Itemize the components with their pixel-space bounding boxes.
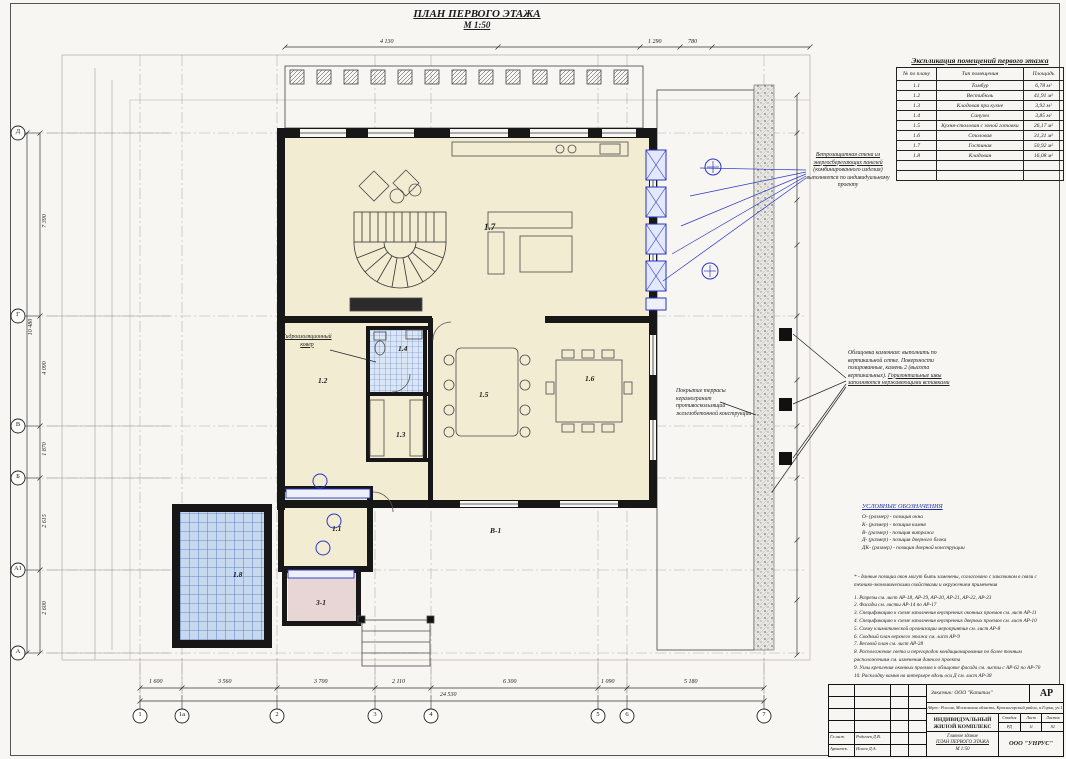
room-schedule: Экспликация помещений первого этажа № по… xyxy=(896,56,1064,181)
drawing-title-small: ПЛАН ПЕРВОГО ЭТАЖА xyxy=(927,740,998,746)
schedule-col-name: Тип помещения xyxy=(937,68,1024,81)
project-name: ИНДИВИДУАЛЬНЫЙ ЖИЛОЙ КОМПЛЕКС xyxy=(927,714,998,732)
dim-top-2: 780 xyxy=(688,39,697,45)
stage-value: РД xyxy=(999,723,1021,731)
cell-name xyxy=(937,161,1024,171)
vent-wall-note-2: (комбинированного изделия) выполняется п… xyxy=(806,167,889,188)
axis-left-b: Б xyxy=(11,473,25,480)
dim-left-3: 2 615 xyxy=(42,504,48,538)
cell-name: Вестибюль xyxy=(937,91,1024,101)
cell-area xyxy=(1023,171,1063,181)
project-address: Адрес: Россия, Московская область, Красн… xyxy=(927,703,1063,714)
cladding-note: Облицовка каменная: выполнить по вертика… xyxy=(848,350,962,388)
dim-left-2: 1 870 xyxy=(42,432,48,466)
vent-wall-note-1: Ветрозащитная стена из энергосберегающих… xyxy=(813,152,882,166)
room-label-1-6: 1.6 xyxy=(585,374,594,383)
title-block-main: Заказчик: ООО "Капитал" АР Адрес: Россия… xyxy=(927,685,1063,756)
dim-bottom-4: 6 300 xyxy=(503,679,517,685)
stage-label: Стадия xyxy=(999,714,1021,722)
room-label-z1: 3-1 xyxy=(316,598,326,607)
legend-title: УСЛОВНЫЕ ОБОЗНАЧЕНИЯ xyxy=(862,503,1052,512)
room-label-1-5: 1.5 xyxy=(479,390,488,399)
room-label-1-3: 1.3 xyxy=(396,430,405,439)
drawing-name: Главное здание ПЛАН ПЕРВОГО ЭТАЖА М 1:50 xyxy=(927,732,998,756)
cell-num: 1.7 xyxy=(897,141,937,151)
room-schedule-title: Экспликация помещений первого этажа xyxy=(896,56,1064,65)
note-item: 5. Схему климатической организации мероп… xyxy=(854,626,1058,634)
title-block: Гл.инж. Родичев Д.В. Архитек. Исаев Д.А.… xyxy=(828,684,1064,757)
axis-left-v: В xyxy=(11,421,25,428)
legend-item: О- (размер) - позиция окна xyxy=(862,514,1052,522)
sheets-value: 92 xyxy=(1042,723,1063,731)
axis-bottom-1a: 1а xyxy=(175,711,189,718)
dim-left-1: 4 090 xyxy=(42,351,48,385)
room-schedule-table: № по плану Тип помещения Площадь 1.1Тамб… xyxy=(896,67,1064,181)
sheet-value: 11 xyxy=(1021,723,1043,731)
name-1: Родичев Д.В. xyxy=(855,733,891,744)
dim-bottom-1: 3 560 xyxy=(218,679,232,685)
cell-num: 1.5 xyxy=(897,121,937,131)
schedule-row: 1.6Столовая31,31 м² xyxy=(897,131,1064,141)
axis-bottom-7: 7 xyxy=(757,711,771,718)
sheet-code: АР xyxy=(1029,685,1063,702)
note-item: 4. Спецификацию к схеме заполнения внутр… xyxy=(854,618,1058,626)
dim-bottom-3: 2 110 xyxy=(392,679,405,685)
role-2: Архитек. xyxy=(829,745,855,756)
firm-name: ООО "УНРУС" xyxy=(999,732,1063,756)
stage-grid: Стадия Лист Листов РД 11 92 xyxy=(999,714,1063,732)
dim-bottom-0: 1 600 xyxy=(149,679,163,685)
sheet-label: Лист xyxy=(1021,714,1043,722)
axis-left-a1: А1 xyxy=(11,565,25,572)
cell-name: Гостиная xyxy=(937,141,1024,151)
axis-bottom-1: 1 xyxy=(133,711,147,718)
schedule-row: 1.3Кладовая при кухне3,92 м² xyxy=(897,101,1064,111)
cell-area: 41,91 м² xyxy=(1023,91,1063,101)
axis-left-a: А xyxy=(11,648,25,655)
dim-bottom-6: 5 180 xyxy=(684,679,698,685)
cell-name: Столовая xyxy=(937,131,1024,141)
dim-top-0: 4 130 xyxy=(380,39,394,45)
note-item: 3. Спецификацию к схеме заполнения внутр… xyxy=(854,610,1058,618)
role-1: Гл.инж. xyxy=(829,733,855,744)
axis-bottom-2: 2 xyxy=(270,711,284,718)
drawing-scale-small: М 1:50 xyxy=(927,747,998,753)
schedule-col-num: № по плану xyxy=(897,68,937,81)
axis-bottom-3: 3 xyxy=(368,711,382,718)
cell-area: 31,31 м² xyxy=(1023,131,1063,141)
client-name: Заказчик: ООО "Капитал" xyxy=(927,685,1029,702)
cell-area: 26,17 м² xyxy=(1023,121,1063,131)
axis-left-g: Г xyxy=(11,311,25,318)
dim-left-4: 2 600 xyxy=(42,591,48,625)
room-label-1-2: 1.2 xyxy=(318,376,327,385)
vent-wall-note: Ветрозащитная стена из энергосберегающих… xyxy=(806,152,890,190)
cell-num: 1.3 xyxy=(897,101,937,111)
cell-name: Кладовая xyxy=(937,151,1024,161)
cell-name xyxy=(937,171,1024,181)
cell-area: 16,08 м² xyxy=(1023,151,1063,161)
dim-left-total: 10 480 xyxy=(28,310,34,344)
cell-num: 1.2 xyxy=(897,91,937,101)
drawing-scale: М 1:50 xyxy=(392,20,562,30)
room-label-1-1: 1.1 xyxy=(332,524,341,533)
cell-area: 3,92 м² xyxy=(1023,101,1063,111)
note-item: 7. Весовой план см. лист АР-28 xyxy=(854,641,1058,649)
cell-name: Кухня-столовая с зоной готовки xyxy=(937,121,1024,131)
legend-item: ДК- (размер) - позиция дверной конструкц… xyxy=(862,545,1052,553)
schedule-row: 1.5Кухня-столовая с зоной готовки26,17 м… xyxy=(897,121,1064,131)
axis-bottom-6: 6 xyxy=(620,711,634,718)
cell-area: 3,85 м² xyxy=(1023,111,1063,121)
schedule-col-area: Площадь xyxy=(1023,68,1063,81)
general-notes: * - данные позиции окон могут быть замен… xyxy=(854,574,1058,680)
waterproof-note: Гидроизоляционный ковер xyxy=(278,334,336,349)
cell-num: 1.4 xyxy=(897,111,937,121)
note-item: 9. Узлы крепления оконных проемов к обли… xyxy=(854,665,1058,673)
cell-num: 1.6 xyxy=(897,131,937,141)
legend-item: К- (размер) - позиция камня xyxy=(862,522,1052,530)
name-2: Исаев Д.А. xyxy=(855,745,891,756)
terrace-note: Покрытие террасы керамогранит противоско… xyxy=(676,388,762,418)
note-item: 8. Расположение света и перегородок конд… xyxy=(854,649,1058,665)
dim-bottom-5: 1 090 xyxy=(601,679,615,685)
room-label-1-7: 1.7 xyxy=(484,222,495,232)
title-block-signatures: Гл.инж. Родичев Д.В. Архитек. Исаев Д.А. xyxy=(829,685,927,756)
schedule-row: 1.1Тамбур6,78 м² xyxy=(897,81,1064,91)
room-label-1-4: 1.4 xyxy=(398,344,407,353)
drawing-title-text: ПЛАН ПЕРВОГО ЭТАЖА xyxy=(392,8,562,20)
sheets-label: Листов xyxy=(1042,714,1063,722)
schedule-row xyxy=(897,161,1064,171)
schedule-row: 1.8Кладовая16,08 м² xyxy=(897,151,1064,161)
note-item: 10. Раскладку камня на интерьере вдоль о… xyxy=(854,673,1058,681)
cell-num: 1.1 xyxy=(897,81,937,91)
cell-name: Кладовая при кухне xyxy=(937,101,1024,111)
cell-area: 50,92 м² xyxy=(1023,141,1063,151)
drawing-title: ПЛАН ПЕРВОГО ЭТАЖА М 1:50 xyxy=(392,8,562,30)
drawing-sheet: ПЛАН ПЕРВОГО ЭТАЖА М 1:50 1.7 1.2 1.4 1.… xyxy=(0,0,1066,759)
cell-name: Тамбур xyxy=(937,81,1024,91)
cell-area: 6,78 м² xyxy=(1023,81,1063,91)
cell-num xyxy=(897,171,937,181)
dim-left-0: 7 390 xyxy=(42,204,48,238)
cell-name: Санузел xyxy=(937,111,1024,121)
cell-area xyxy=(1023,161,1063,171)
cell-num xyxy=(897,161,937,171)
cell-num: 1.8 xyxy=(897,151,937,161)
schedule-row: 1.4Санузел3,85 м² xyxy=(897,111,1064,121)
axis-left-d: Д xyxy=(11,128,25,135)
dim-bottom-total: 24 530 xyxy=(440,692,457,698)
dim-bottom-2: 3 700 xyxy=(314,679,328,685)
schedule-row: 1.2Вестибюль41,91 м² xyxy=(897,91,1064,101)
schedule-row xyxy=(897,171,1064,181)
axis-bottom-5: 5 xyxy=(591,711,605,718)
room-label-v1: В-1 xyxy=(490,526,501,535)
note-star: * - данные позиции окон могут быть замен… xyxy=(854,574,1058,590)
schedule-row: 1.7Гостиная50,92 м² xyxy=(897,141,1064,151)
room-label-1-8: 1.8 xyxy=(233,570,242,579)
legend: УСЛОВНЫЕ ОБОЗНАЧЕНИЯ О- (размер) - позиц… xyxy=(862,503,1052,553)
dim-top-1: 1 290 xyxy=(648,39,662,45)
axis-bottom-4: 4 xyxy=(424,711,438,718)
